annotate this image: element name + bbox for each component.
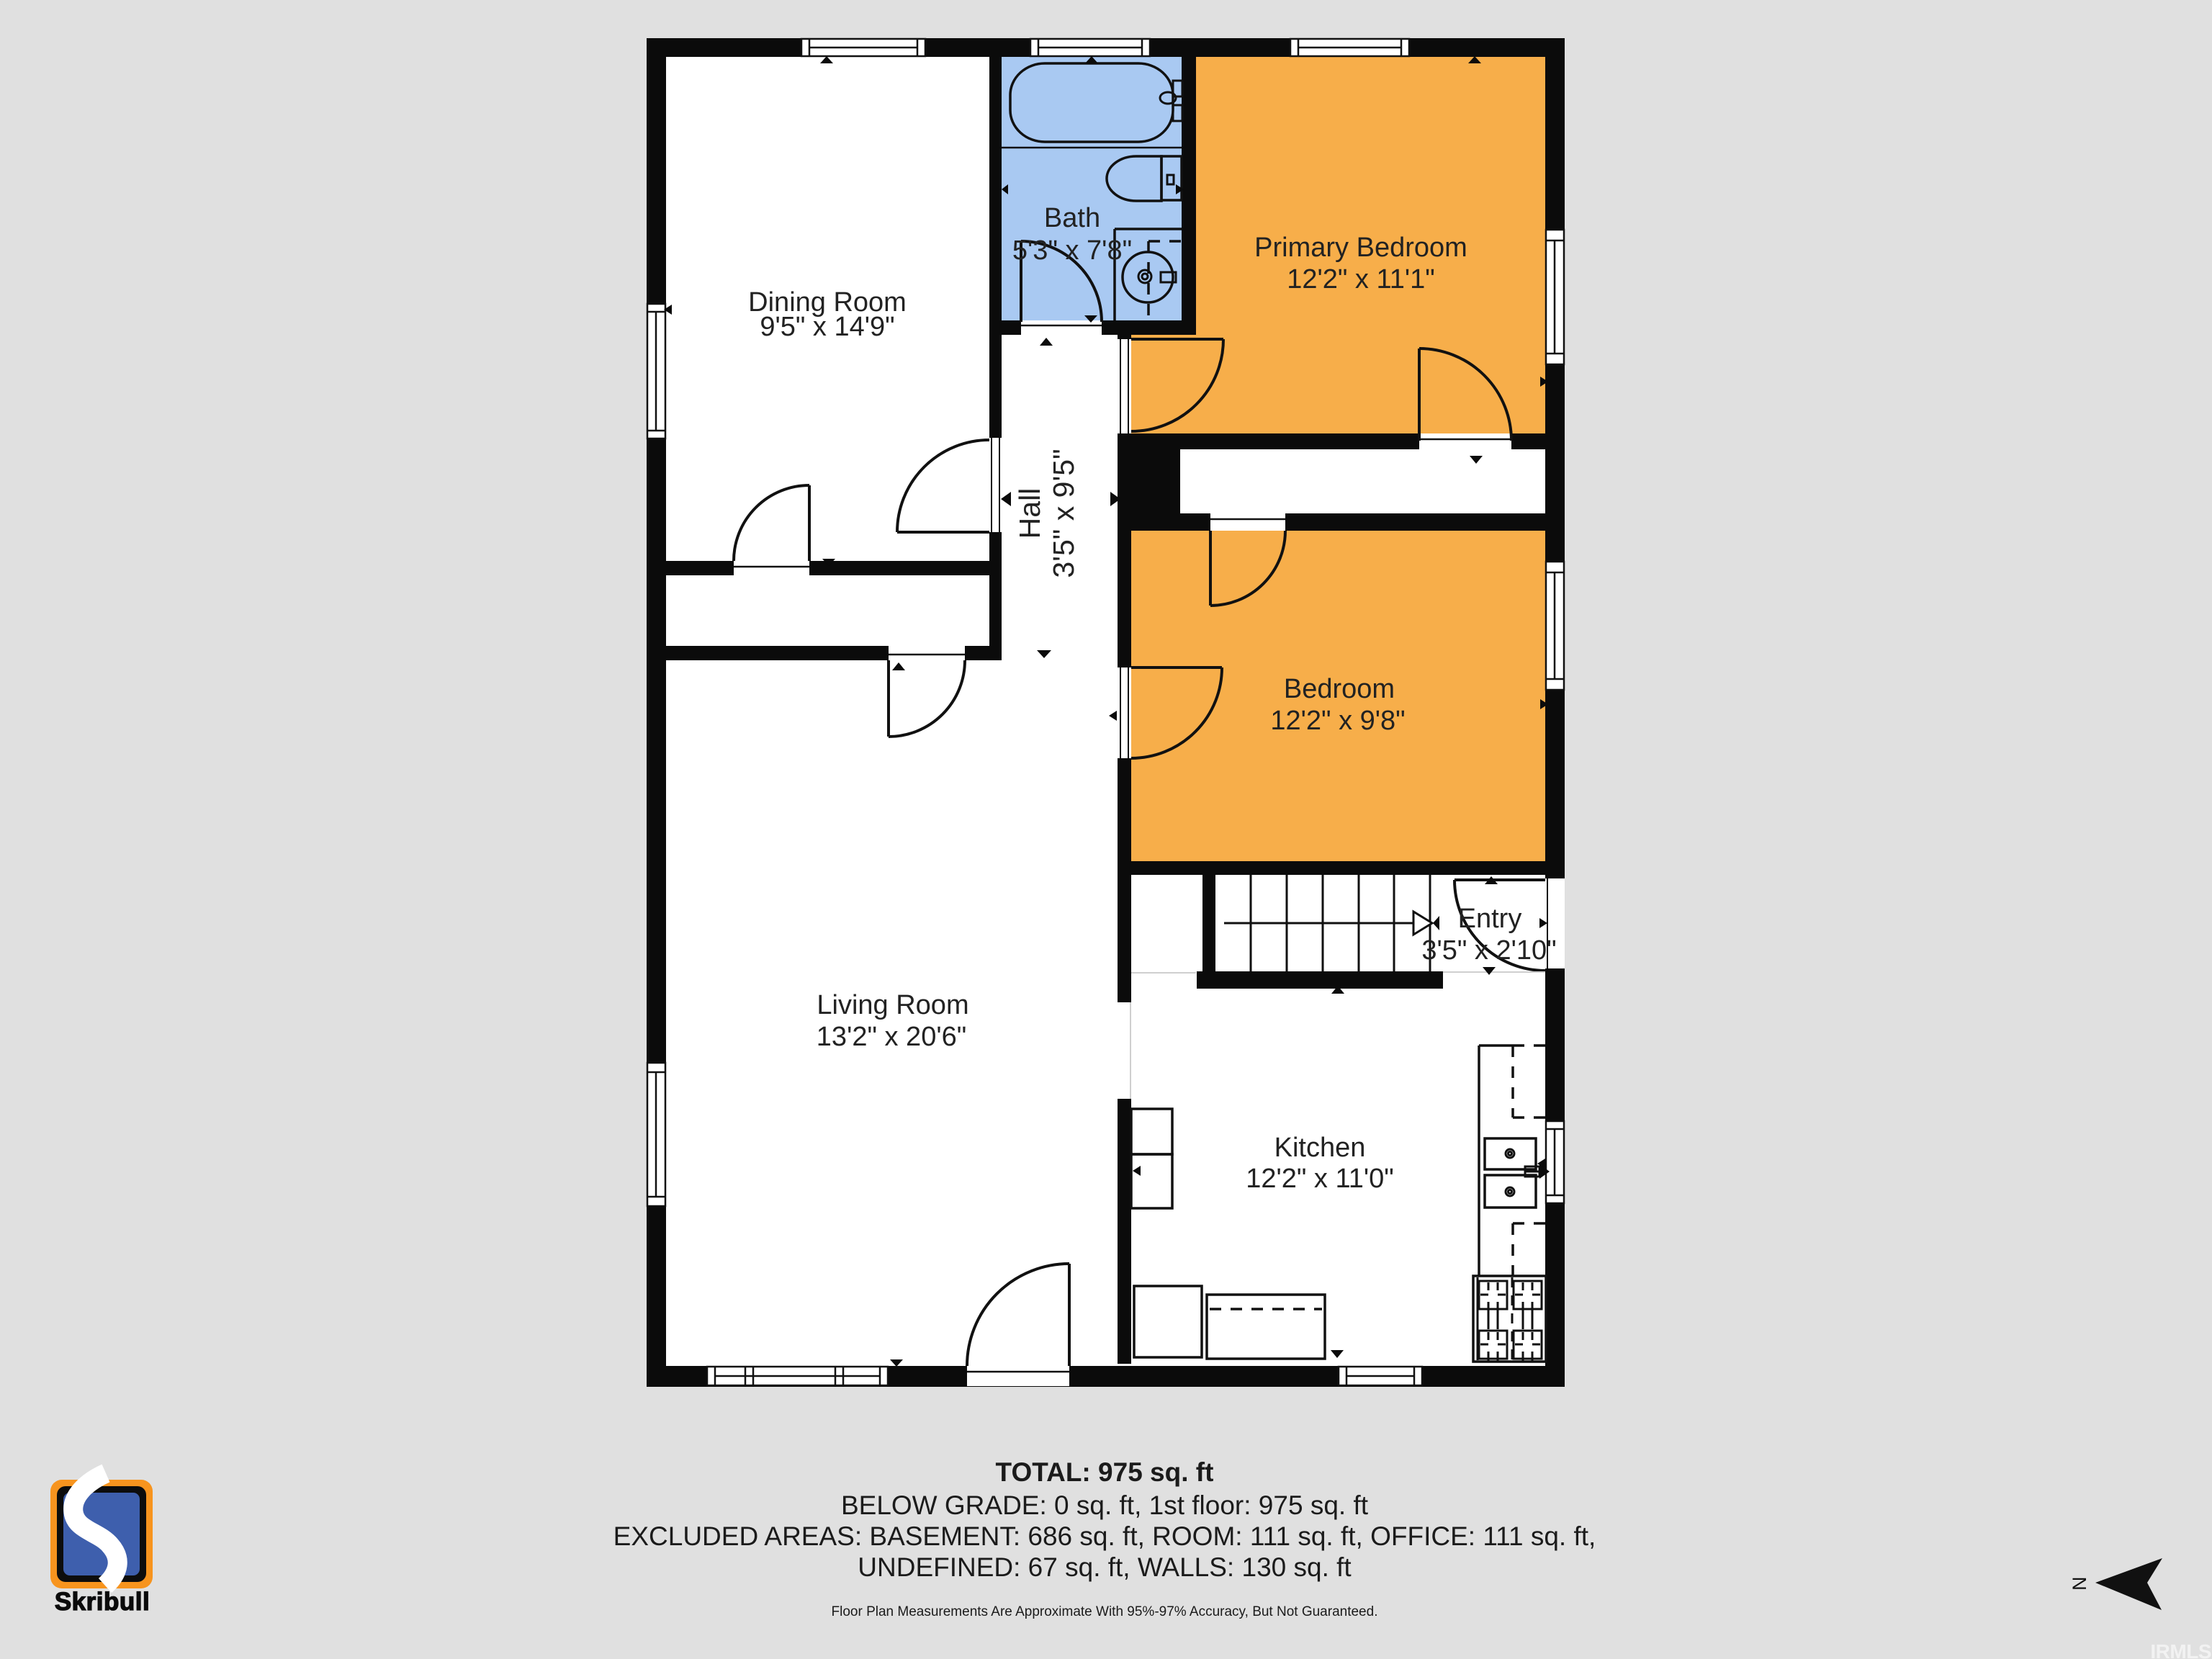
svg-text:IRMLS: IRMLS bbox=[2150, 1640, 2211, 1659]
svg-text:Hall: Hall bbox=[1013, 488, 1046, 539]
svg-text:TOTAL: 975 sq. ft: TOTAL: 975 sq. ft bbox=[996, 1457, 1214, 1487]
svg-text:Skribull: Skribull bbox=[55, 1588, 150, 1616]
svg-text:12'2" x 11'1": 12'2" x 11'1" bbox=[1287, 264, 1435, 295]
svg-text:3'5" x 2'10": 3'5" x 2'10" bbox=[1421, 935, 1556, 966]
svg-text:12'2" x 9'8": 12'2" x 9'8" bbox=[1270, 706, 1405, 736]
svg-text:12'2" x 11'0": 12'2" x 11'0" bbox=[1246, 1164, 1394, 1194]
svg-text:UNDEFINED: 67 sq. ft, WALLS: 1: UNDEFINED: 67 sq. ft, WALLS: 130 sq. ft bbox=[858, 1552, 1352, 1582]
svg-text:Bath: Bath bbox=[1044, 203, 1100, 233]
svg-text:Living Room: Living Room bbox=[817, 990, 968, 1020]
svg-text:N: N bbox=[2069, 1577, 2090, 1591]
svg-text:Bedroom: Bedroom bbox=[1284, 674, 1395, 704]
svg-text:Kitchen: Kitchen bbox=[1274, 1133, 1366, 1163]
svg-text:13'2" x 20'6": 13'2" x 20'6" bbox=[817, 1022, 966, 1052]
svg-text:BELOW GRADE: 0 sq. ft, 1st flo: BELOW GRADE: 0 sq. ft, 1st floor: 975 sq… bbox=[841, 1491, 1369, 1520]
svg-text:EXCLUDED AREAS: BASEMENT: 686: EXCLUDED AREAS: BASEMENT: 686 sq. ft, RO… bbox=[613, 1521, 1596, 1551]
svg-text:9'5" x 14'9": 9'5" x 14'9" bbox=[760, 312, 894, 342]
svg-text:5'3" x 7'8": 5'3" x 7'8" bbox=[1012, 235, 1132, 266]
svg-text:3'5" x 9'5": 3'5" x 9'5" bbox=[1047, 449, 1080, 577]
svg-text:Floor Plan Measurements Are Ap: Floor Plan Measurements Are Approximate … bbox=[832, 1604, 1378, 1619]
svg-text:Primary Bedroom: Primary Bedroom bbox=[1254, 233, 1467, 263]
svg-text:Entry: Entry bbox=[1458, 904, 1522, 934]
